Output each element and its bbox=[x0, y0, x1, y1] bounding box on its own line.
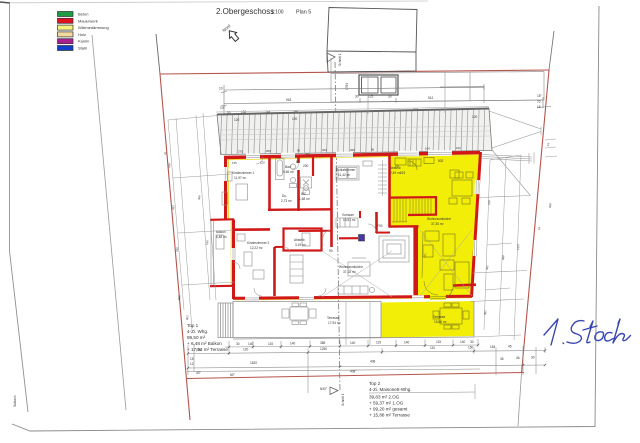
svg-text:72: 72 bbox=[537, 100, 541, 104]
svg-text:Beton: Beton bbox=[78, 12, 88, 17]
svg-text:110: 110 bbox=[430, 346, 435, 350]
svg-text:30: 30 bbox=[355, 95, 359, 99]
svg-text:5,66 m²: 5,66 m² bbox=[283, 170, 294, 174]
svg-text:275: 275 bbox=[238, 150, 243, 154]
svg-text:230: 230 bbox=[175, 247, 179, 252]
svg-text:115: 115 bbox=[376, 341, 381, 345]
svg-text:+ 17,94 m² Terrasse: + 17,94 m² Terrasse bbox=[187, 347, 228, 352]
svg-text:80: 80 bbox=[296, 160, 300, 164]
svg-text:1557: 1557 bbox=[516, 243, 520, 250]
svg-text:115: 115 bbox=[268, 342, 273, 346]
svg-text:1:100: 1:100 bbox=[271, 10, 284, 16]
svg-text:4-Zi. Whg.: 4-Zi. Whg. bbox=[187, 329, 208, 334]
svg-text:10: 10 bbox=[219, 87, 223, 91]
svg-text:12,22 m²: 12,22 m² bbox=[250, 246, 263, 250]
svg-text:60°: 60° bbox=[230, 373, 236, 377]
svg-text:324: 324 bbox=[322, 148, 327, 152]
svg-text:10: 10 bbox=[395, 164, 399, 168]
svg-text:+ 99,20 m² gesamt: + 99,20 m² gesamt bbox=[369, 407, 408, 412]
svg-text:30: 30 bbox=[470, 340, 474, 344]
svg-text:104: 104 bbox=[425, 147, 430, 151]
svg-text:11,97 m²: 11,97 m² bbox=[234, 176, 246, 180]
svg-text:Kamin: Kamin bbox=[78, 39, 89, 44]
svg-text:200: 200 bbox=[303, 164, 309, 168]
svg-text:356: 356 bbox=[197, 195, 201, 200]
svg-text:30: 30 bbox=[388, 95, 392, 99]
svg-text:590: 590 bbox=[177, 295, 181, 300]
svg-text:140: 140 bbox=[290, 342, 296, 346]
svg-text:266: 266 bbox=[350, 148, 355, 152]
svg-text:120: 120 bbox=[243, 348, 249, 352]
svg-text:Top 2: Top 2 bbox=[369, 381, 381, 386]
svg-text:140: 140 bbox=[404, 341, 410, 345]
svg-text:46: 46 bbox=[516, 356, 520, 360]
svg-text:Schlafzimmer: Schlafzimmer bbox=[336, 168, 356, 172]
svg-text:Vorraum: Vorraum bbox=[342, 213, 354, 217]
svg-text:15: 15 bbox=[537, 105, 541, 109]
svg-text:12: 12 bbox=[190, 362, 194, 366]
svg-text:99,50 m²: 99,50 m² bbox=[187, 335, 206, 340]
svg-text:Wohnraumküche: Wohnraumküche bbox=[339, 265, 363, 269]
svg-text:15°: 15° bbox=[537, 94, 543, 98]
svg-text:125: 125 bbox=[368, 95, 374, 99]
svg-text:Salzach: Salzach bbox=[13, 395, 17, 407]
svg-text:2.Obergeschoss: 2.Obergeschoss bbox=[216, 7, 274, 16]
svg-text:219: 219 bbox=[400, 171, 406, 175]
svg-text:Terrasse: Terrasse bbox=[433, 315, 445, 319]
svg-text:120: 120 bbox=[292, 117, 298, 121]
svg-text:37,18 m²: 37,18 m² bbox=[343, 270, 356, 274]
svg-text:N30°: N30° bbox=[320, 387, 328, 391]
svg-text:2,73 m²: 2,73 m² bbox=[281, 199, 292, 203]
svg-text:90: 90 bbox=[329, 249, 333, 253]
svg-text:120: 120 bbox=[472, 115, 478, 119]
svg-text:968: 968 bbox=[501, 255, 505, 260]
svg-text:Wohnraumküche: Wohnraumküche bbox=[427, 217, 451, 221]
svg-text:6,48 m²: 6,48 m² bbox=[216, 235, 227, 239]
svg-text:45: 45 bbox=[508, 345, 512, 349]
svg-text:13,51 m²: 13,51 m² bbox=[343, 218, 356, 222]
svg-text:140: 140 bbox=[248, 342, 254, 346]
svg-text:Mauerwerk: Mauerwerk bbox=[78, 18, 98, 23]
svg-text:502: 502 bbox=[438, 159, 444, 163]
svg-text:Terrasse: Terrasse bbox=[327, 316, 339, 320]
svg-text:+ 15,88 m² Terrasse: + 15,88 m² Terrasse bbox=[369, 413, 410, 418]
svg-text:140: 140 bbox=[460, 340, 466, 344]
svg-text:140: 140 bbox=[350, 341, 356, 345]
svg-text:39,83 m² 2.OG: 39,83 m² 2.OG bbox=[369, 395, 400, 400]
svg-text:260: 260 bbox=[266, 149, 271, 153]
svg-text:1250: 1250 bbox=[320, 347, 327, 351]
svg-text:90: 90 bbox=[297, 149, 301, 153]
svg-text:431: 431 bbox=[485, 265, 489, 270]
svg-text:+ 6,48 m² Balkon: + 6,48 m² Balkon bbox=[187, 341, 222, 346]
svg-text:30: 30 bbox=[531, 356, 535, 360]
svg-text:Schnitt 1: Schnitt 1 bbox=[341, 393, 345, 406]
svg-text:15: 15 bbox=[190, 357, 194, 361]
svg-text:135: 135 bbox=[232, 161, 237, 165]
svg-text:115: 115 bbox=[436, 340, 441, 344]
svg-text:Kinderzimmer 2: Kinderzimmer 2 bbox=[247, 241, 270, 245]
svg-text:37,35 m²: 37,35 m² bbox=[431, 222, 444, 226]
svg-text:Schnitt 1: Schnitt 1 bbox=[338, 53, 342, 66]
svg-text:150: 150 bbox=[468, 346, 474, 350]
svg-text:120: 120 bbox=[260, 161, 265, 165]
svg-text:1,68 m²: 1,68 m² bbox=[299, 197, 310, 201]
svg-text:+ 59,37 m² 1.OG: + 59,37 m² 1.OG bbox=[369, 401, 404, 406]
svg-text:Du.: Du. bbox=[282, 194, 287, 198]
svg-text:WC: WC bbox=[301, 192, 307, 196]
svg-text:918: 918 bbox=[286, 98, 292, 102]
svg-text:102: 102 bbox=[456, 146, 461, 150]
svg-text:15,86 m²: 15,86 m² bbox=[434, 320, 447, 324]
svg-text:36: 36 bbox=[500, 357, 504, 361]
svg-text:154: 154 bbox=[490, 345, 496, 349]
svg-text:90: 90 bbox=[371, 148, 375, 152]
svg-text:Plan 5: Plan 5 bbox=[296, 10, 311, 16]
svg-text:Wärmedämmung: Wärmedämmung bbox=[78, 25, 109, 30]
svg-text:512: 512 bbox=[428, 96, 434, 100]
svg-text:1520: 1520 bbox=[250, 361, 257, 365]
svg-text:381: 381 bbox=[483, 310, 487, 315]
svg-text:3,19 m²: 3,19 m² bbox=[295, 243, 306, 247]
svg-text:11,42 m²: 11,42 m² bbox=[338, 173, 350, 177]
svg-text:F90: F90 bbox=[377, 224, 383, 228]
svg-text:408°: 408° bbox=[350, 370, 357, 374]
svg-text:Kinderzimmer 1: Kinderzimmer 1 bbox=[232, 171, 255, 175]
svg-text:Stahl: Stahl bbox=[78, 46, 87, 51]
svg-text:4-Zi. Maisonett-Whg.: 4-Zi. Maisonett-Whg. bbox=[369, 387, 412, 392]
svg-text:958: 958 bbox=[548, 203, 552, 208]
svg-text:602: 602 bbox=[185, 315, 189, 320]
svg-text:30: 30 bbox=[236, 342, 240, 346]
svg-text:10°: 10° bbox=[220, 106, 226, 110]
svg-text:200: 200 bbox=[305, 152, 310, 156]
svg-text:40°: 40° bbox=[196, 371, 202, 375]
svg-text:Holz: Holz bbox=[78, 32, 86, 37]
svg-text:Abstellr.: Abstellr. bbox=[294, 238, 306, 242]
svg-text:316: 316 bbox=[487, 200, 491, 205]
svg-text:150: 150 bbox=[205, 240, 209, 245]
svg-text:385: 385 bbox=[320, 341, 326, 345]
svg-text:Top 1: Top 1 bbox=[187, 323, 199, 328]
svg-text:433: 433 bbox=[171, 205, 175, 210]
svg-text:17,94 m²: 17,94 m² bbox=[328, 321, 341, 325]
svg-text:Bad: Bad bbox=[285, 165, 291, 169]
svg-text:408: 408 bbox=[370, 360, 376, 364]
svg-text:236: 236 bbox=[167, 163, 171, 168]
svg-text:120: 120 bbox=[234, 118, 240, 122]
